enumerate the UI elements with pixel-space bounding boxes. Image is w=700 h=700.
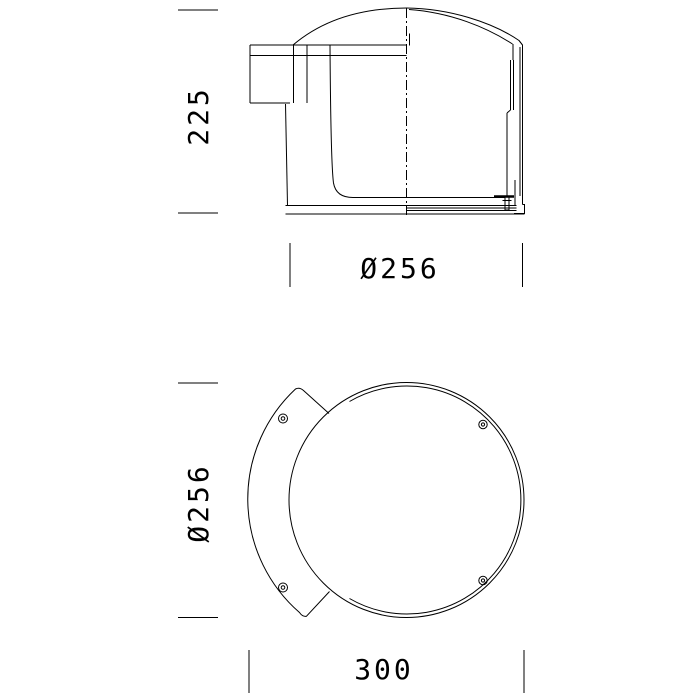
dim-front-width-text: 300 xyxy=(354,653,414,686)
rim-screw-top xyxy=(479,420,487,428)
dome-outline xyxy=(293,8,523,45)
bracket-screw-bottom xyxy=(279,583,288,592)
bracket-screw-bottom-inner xyxy=(281,586,285,590)
rim-screw-top-inner xyxy=(481,423,484,426)
bracket-screw-top xyxy=(279,414,288,423)
dim-side-height-text: 225 xyxy=(182,86,215,146)
wall-mount-plate xyxy=(250,45,407,103)
rim-screw-bottom-inner xyxy=(481,579,484,582)
rim-screw-bottom xyxy=(479,576,487,584)
dim-side-diameter: Ø256 xyxy=(290,243,523,287)
right-edge-detail xyxy=(507,41,525,214)
base-plate xyxy=(286,206,525,215)
rim-screw-bottom-outer xyxy=(479,576,487,584)
front-view: Ø256 300 xyxy=(178,383,524,694)
bezel-outer-circle xyxy=(289,383,524,618)
bracket-screw-top-inner xyxy=(281,417,285,421)
rim-screw-top-outer xyxy=(479,420,487,428)
dim-front-diameter: Ø256 xyxy=(178,383,218,618)
dim-front-diameter-text: Ø256 xyxy=(182,463,215,542)
dome-inner-arc xyxy=(409,10,513,45)
dim-side-height: 225 xyxy=(178,10,218,213)
dim-front-width: 300 xyxy=(249,650,524,693)
technical-drawing: 225 Ø256 Ø256 xyxy=(0,0,700,700)
housing-left-edge xyxy=(286,104,288,206)
housing-section-line xyxy=(330,45,505,198)
dim-side-diameter-text: Ø256 xyxy=(360,252,439,285)
bezel-inner-arc xyxy=(350,386,521,614)
side-view: 225 Ø256 xyxy=(178,8,525,287)
bracket-screw-top-outer xyxy=(279,414,288,423)
bracket-screw-bottom-outer xyxy=(279,583,288,592)
